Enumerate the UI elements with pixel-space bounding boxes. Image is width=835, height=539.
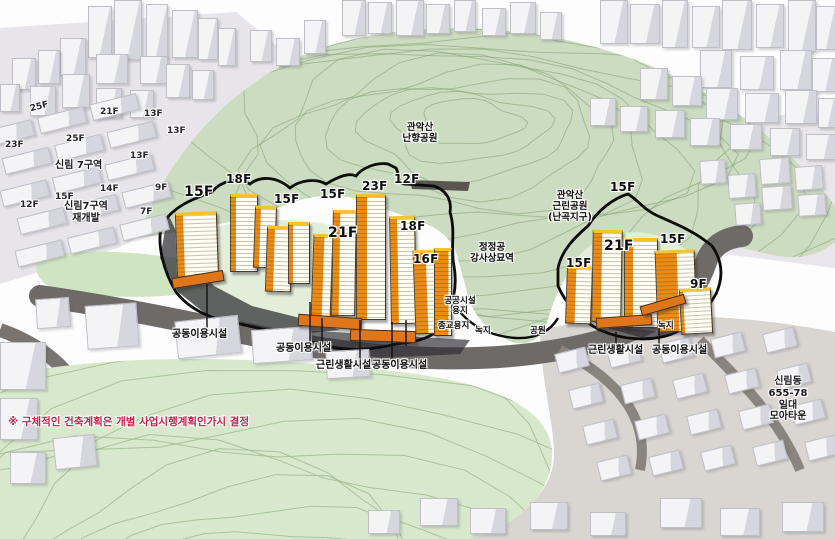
floor-label-site: 15F [566, 256, 592, 270]
floor-label-site: 18F [400, 219, 426, 233]
label-gwanak-neighborhood-park: 관악산 근린공원 (난곡지구) [548, 190, 592, 224]
floor-label-context: 25F [66, 134, 85, 145]
floor-label-site: 15F [184, 184, 214, 201]
label-green-right: 녹지 [658, 321, 674, 331]
floor-label-context: 14F [100, 184, 119, 195]
disclaimer-note: ※ 구체적인 건축계획은 개별 사업시행계획인가시 결정 [8, 416, 249, 428]
label-leader-lines [0, 0, 835, 539]
label-tomb-site: 정정공 강사상묘역 [470, 242, 514, 264]
floor-label-site: 15F [660, 232, 686, 246]
label-green-center: 녹지 [475, 326, 491, 336]
floor-label-site: 12F [394, 172, 420, 186]
label-sillim-district7-redev: 신림7구역 재개발 [64, 201, 108, 225]
floor-label-site: 21F [328, 225, 358, 242]
floor-label-context: 12F [20, 200, 39, 211]
floor-label-site: 15F [610, 180, 636, 194]
label-sillim-district7: 신림 7구역 [55, 160, 102, 172]
label-community-facility-3: 공동이용시설 [372, 360, 427, 372]
floor-label-context: 23F [5, 140, 24, 151]
floor-label-context: 9F [155, 183, 167, 194]
floor-label-site: 9F [690, 277, 707, 291]
floor-label-context: 21F [100, 107, 119, 118]
label-religious-site: 종교용지 [438, 321, 469, 331]
label-moa-town: 신림동 655-78일대 모아타운 [765, 376, 812, 423]
floor-label-context: 7F [140, 207, 152, 218]
site-plan-rendering: 관악산 난향공원 관악산 근린공원 (난곡지구) 정정공 강사상묘역 공공시설 … [0, 0, 835, 539]
label-community-facility-1: 공동이용시설 [172, 329, 227, 341]
floor-label-site: 23F [362, 179, 388, 193]
floor-label-site: 15F [320, 187, 346, 201]
floor-label-site: 21F [604, 238, 634, 255]
label-community-facility-4: 공동이용시설 [652, 345, 707, 357]
label-park-small: 공원 [530, 326, 546, 336]
floor-label-context: 13F [144, 109, 163, 120]
label-community-facility-2: 공동이용시설 [276, 343, 331, 355]
floor-label-context: 13F [167, 126, 186, 137]
label-retail-facility-2: 근린생활시설 [588, 345, 643, 357]
floor-label-context: 15F [55, 192, 74, 203]
floor-label-context: 13F [130, 151, 149, 162]
floor-label-site: 18F [226, 172, 252, 186]
floor-label-site: 16F [413, 252, 439, 266]
floor-label-site: 15F [274, 192, 300, 206]
label-nanhyang-park: 관악산 난향공원 [403, 122, 438, 144]
label-public-facility-site: 공공시설 용지 [444, 296, 475, 316]
label-retail-facility-1: 근린생활시설 [316, 360, 371, 372]
